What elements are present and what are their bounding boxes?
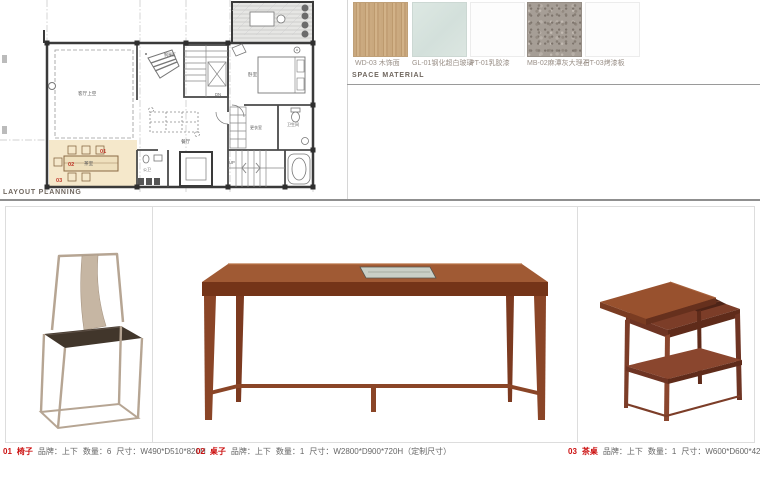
stair-label-dn: DN — [215, 92, 221, 97]
caption-chair: 01椅子品牌：上下数量：6尺寸：W490*D510*820H — [3, 446, 211, 457]
bedroom-armchair — [232, 44, 300, 56]
caption-tea-table: 03茶桌品牌：上下数量：1尺寸：W600*D600*420H（定制尺寸） — [568, 446, 760, 457]
room-label-piano: 钢琴区 — [164, 51, 176, 57]
caption-chair-size: 尺寸：W490*D510*820H — [116, 447, 205, 456]
stair-down — [184, 45, 228, 97]
axis-tick — [2, 126, 7, 134]
material-swatch-marble — [527, 2, 582, 57]
layout-planning-heading: LAYOUT PLANNING — [3, 189, 82, 196]
material-swatch-wood — [353, 2, 408, 57]
elevator — [180, 152, 212, 186]
bathroom-fixtures — [288, 108, 310, 184]
room-label-dining: 餐厅 — [181, 138, 191, 145]
stair-label-up: UP — [229, 160, 235, 165]
space-material-heading: SPACE MATERIAL — [352, 72, 424, 79]
floor-plan-drawing: 客厅上空 钢琴区 卧室 更衣室 卫生间 餐厅 公卫 茶室 DN UP 01 02… — [0, 0, 347, 200]
marker-03: 03 — [56, 178, 62, 184]
material-label-wd03: WD-03 木饰面 — [355, 58, 400, 68]
caption-tea-table-qty: 数量：1 — [648, 447, 676, 456]
room-label-dressing: 更衣室 — [250, 124, 262, 130]
caption-tea-table-brand: 品牌：上下 — [603, 447, 643, 456]
caption-table-size: 尺寸：W2800*D900*720H（定制尺寸） — [309, 447, 451, 456]
bed — [258, 57, 305, 93]
caption-tea-table-no: 03 — [568, 447, 577, 456]
caption-tea-table-size: 尺寸：W600*D600*420H（定制尺寸） — [681, 447, 760, 456]
room-label-bedroom: 卧室 — [248, 71, 258, 78]
furniture-panel-chair — [6, 207, 153, 442]
room-label-powder: 公卫 — [143, 167, 151, 172]
furniture-panel-table — [153, 207, 578, 442]
marker-02: 02 — [68, 162, 74, 168]
material-label-pt03: PT-03烤漆板 — [585, 58, 625, 68]
floor-plan: 客厅上空 钢琴区 卧室 更衣室 卫生间 餐厅 公卫 茶室 DN UP 01 02… — [0, 0, 347, 200]
material-label-mb02: MB-02麻潭灰大理石 — [527, 58, 590, 68]
caption-chair-name: 椅子 — [17, 447, 33, 456]
caption-table-brand: 品牌：上下 — [231, 447, 271, 456]
room-label-tea-room: 茶室 — [84, 160, 94, 166]
material-label-gl01: GL-01钢化超白玻璃 — [412, 58, 473, 68]
material-swatch-paint-pt03 — [585, 2, 640, 57]
counter-blocks — [138, 178, 160, 185]
furniture-panels — [5, 206, 755, 443]
material-swatch-glass — [412, 2, 467, 57]
design-board-page: { "page": { "layout_planning_label": "LA… — [0, 0, 760, 501]
caption-table-qty: 数量：1 — [276, 447, 304, 456]
furniture-panel-tea-table — [578, 207, 754, 442]
room-label-living-void: 客厅上空 — [78, 90, 97, 97]
material-divider — [347, 84, 760, 85]
caption-table-name: 桌子 — [210, 447, 226, 456]
caption-chair-brand: 品牌：上下 — [38, 447, 78, 456]
material-label-pt01: PT-01乳胶漆 — [470, 58, 510, 68]
main-horizontal-divider — [0, 199, 760, 201]
room-label-bathroom: 卫生间 — [287, 121, 299, 127]
caption-chair-no: 01 — [3, 447, 12, 456]
stair-up — [228, 150, 285, 187]
caption-table: 02桌子品牌：上下数量：1尺寸：W2800*D900*720H（定制尺寸） — [196, 446, 456, 457]
caption-table-no: 02 — [196, 447, 205, 456]
marker-01: 01 — [100, 149, 106, 155]
sofa-dashed — [149, 108, 200, 137]
caption-chair-qty: 数量：6 — [83, 447, 111, 456]
axis-tick — [2, 55, 7, 63]
top-vertical-divider — [347, 0, 348, 200]
powder-room-fixtures — [143, 155, 162, 163]
caption-tea-table-name: 茶桌 — [582, 447, 598, 456]
terrace — [232, 2, 313, 43]
material-swatch-paint-pt01 — [470, 2, 525, 57]
